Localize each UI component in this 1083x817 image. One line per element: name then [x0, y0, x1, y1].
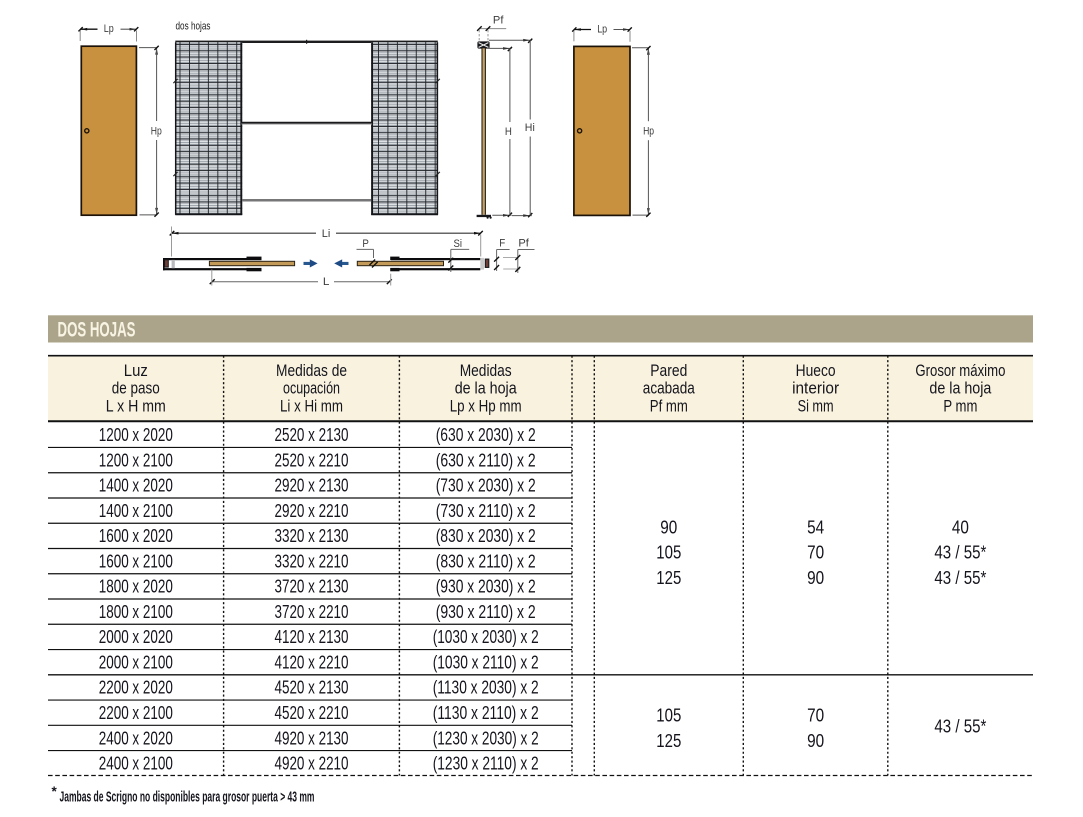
- svg-text:(1230 x 2110) x 2: (1230 x 2110) x 2: [433, 753, 539, 774]
- svg-text:Pf mm: Pf mm: [650, 396, 688, 415]
- svg-text:70: 70: [807, 542, 824, 563]
- svg-text:4520 x 2130: 4520 x 2130: [275, 677, 349, 698]
- svg-text:4920 x 2130: 4920 x 2130: [275, 727, 349, 748]
- svg-text:43 / 55*: 43 / 55*: [934, 567, 986, 588]
- svg-text:70: 70: [807, 705, 824, 726]
- svg-text:DOS HOJAS: DOS HOJAS: [58, 319, 136, 342]
- svg-text:(730 x 2110) x 2: (730 x 2110) x 2: [436, 500, 536, 521]
- svg-text:125: 125: [656, 730, 681, 751]
- svg-text:Hi: Hi: [525, 122, 535, 134]
- svg-text:43 / 55*: 43 / 55*: [934, 542, 986, 563]
- svg-text:acabada: acabada: [643, 379, 695, 398]
- svg-text:ocupación: ocupación: [283, 379, 340, 398]
- svg-text:2200 x 2020: 2200 x 2020: [99, 677, 173, 698]
- svg-text:interior: interior: [792, 379, 839, 398]
- svg-text:(1130 x 2030) x 2: (1130 x 2030) x 2: [433, 677, 539, 698]
- svg-text:Pf: Pf: [493, 15, 504, 27]
- svg-text:90: 90: [807, 567, 824, 588]
- svg-text:Medidas: Medidas: [460, 361, 512, 380]
- svg-text:(930 x 2110) x 2: (930 x 2110) x 2: [436, 601, 536, 622]
- svg-text:dos hojas: dos hojas: [176, 20, 211, 32]
- svg-text:Pf: Pf: [518, 237, 529, 249]
- svg-text:1400 x 2020: 1400 x 2020: [99, 475, 173, 496]
- svg-text:Lp: Lp: [597, 24, 607, 36]
- svg-text:90: 90: [807, 730, 824, 751]
- svg-text:105: 105: [656, 542, 681, 563]
- svg-text:1600 x 2100: 1600 x 2100: [99, 550, 173, 571]
- svg-text:2000 x 2020: 2000 x 2020: [99, 626, 173, 647]
- svg-text:(630 x 2110) x 2: (630 x 2110) x 2: [436, 449, 536, 470]
- svg-text:2520 x 2210: 2520 x 2210: [275, 449, 349, 470]
- svg-text:105: 105: [656, 705, 681, 726]
- svg-text:Hp: Hp: [151, 126, 162, 138]
- svg-text:(1030 x 2030) x 2: (1030 x 2030) x 2: [433, 626, 539, 647]
- svg-text:2400 x 2020: 2400 x 2020: [99, 727, 173, 748]
- svg-text:2400 x 2100: 2400 x 2100: [99, 753, 173, 774]
- svg-text:(1030 x 2110) x 2: (1030 x 2110) x 2: [433, 651, 539, 672]
- svg-text:Pared: Pared: [650, 361, 687, 380]
- svg-text:3720 x 2130: 3720 x 2130: [275, 576, 349, 597]
- svg-text:Li: Li: [322, 228, 331, 240]
- svg-text:(830 x 2030) x 2: (830 x 2030) x 2: [436, 525, 536, 546]
- svg-text:P mm: P mm: [943, 396, 977, 415]
- svg-text:Grosor máximo: Grosor máximo: [915, 361, 1005, 380]
- svg-text:3320 x 2210: 3320 x 2210: [275, 550, 349, 571]
- svg-text:(830 x 2110) x 2: (830 x 2110) x 2: [436, 550, 536, 571]
- svg-text:Hp: Hp: [643, 126, 654, 138]
- svg-text:1800 x 2100: 1800 x 2100: [99, 601, 173, 622]
- svg-text:de paso: de paso: [112, 379, 160, 398]
- svg-text:2920 x 2210: 2920 x 2210: [275, 500, 349, 521]
- svg-text:de la hoja: de la hoja: [455, 379, 517, 398]
- svg-text:4520 x 2210: 4520 x 2210: [275, 702, 349, 723]
- svg-text:43 / 55*: 43 / 55*: [934, 715, 986, 736]
- svg-text:Jambas de Scrigno no disponibl: Jambas de Scrigno no disponibles para gr…: [60, 788, 315, 805]
- svg-text:(1230 x 2030) x 2: (1230 x 2030) x 2: [433, 727, 539, 748]
- svg-text:1400 x 2100: 1400 x 2100: [99, 500, 173, 521]
- svg-text:2000 x 2100: 2000 x 2100: [99, 651, 173, 672]
- svg-text:H: H: [505, 126, 512, 138]
- svg-text:Si: Si: [454, 238, 463, 250]
- svg-text:Medidas de: Medidas de: [276, 361, 347, 380]
- svg-text:2200 x 2100: 2200 x 2100: [99, 702, 173, 723]
- svg-text:Luz: Luz: [124, 361, 148, 380]
- svg-text:1200 x 2020: 1200 x 2020: [99, 424, 173, 445]
- svg-text:(730 x 2030) x 2: (730 x 2030) x 2: [436, 475, 536, 496]
- svg-text:54: 54: [807, 516, 824, 537]
- svg-text:P: P: [362, 238, 369, 250]
- svg-text:40: 40: [952, 516, 969, 537]
- svg-text:Lp x Hp mm: Lp x Hp mm: [450, 396, 522, 415]
- svg-text:L: L: [323, 276, 330, 288]
- svg-text:Li x Hi mm: Li x Hi mm: [280, 396, 343, 415]
- svg-text:(930 x 2030) x 2: (930 x 2030) x 2: [436, 576, 536, 597]
- svg-text:90: 90: [660, 516, 677, 537]
- svg-text:de la hoja: de la hoja: [929, 379, 991, 398]
- svg-text:F: F: [499, 237, 505, 249]
- svg-text:(630 x 2030) x 2: (630 x 2030) x 2: [436, 424, 536, 445]
- svg-text:3720 x 2210: 3720 x 2210: [275, 601, 349, 622]
- svg-text:4920 x 2210: 4920 x 2210: [275, 753, 349, 774]
- svg-text:1200 x 2100: 1200 x 2100: [99, 449, 173, 470]
- svg-text:1800 x 2020: 1800 x 2020: [99, 576, 173, 597]
- svg-text:(1130 x 2110) x 2: (1130 x 2110) x 2: [433, 702, 539, 723]
- svg-text:4120 x 2210: 4120 x 2210: [275, 651, 349, 672]
- svg-text:2920 x 2130: 2920 x 2130: [275, 475, 349, 496]
- svg-text:3320 x 2130: 3320 x 2130: [275, 525, 349, 546]
- svg-text:Si mm: Si mm: [798, 396, 834, 415]
- svg-text:L x H mm: L x H mm: [106, 396, 166, 415]
- svg-text:*: *: [52, 784, 58, 799]
- svg-text:125: 125: [656, 567, 681, 588]
- svg-text:2520 x 2130: 2520 x 2130: [275, 424, 349, 445]
- svg-text:Hueco: Hueco: [796, 361, 836, 380]
- svg-text:1600 x 2020: 1600 x 2020: [99, 525, 173, 546]
- svg-text:Lp: Lp: [104, 23, 114, 35]
- svg-text:4120 x 2130: 4120 x 2130: [275, 626, 349, 647]
